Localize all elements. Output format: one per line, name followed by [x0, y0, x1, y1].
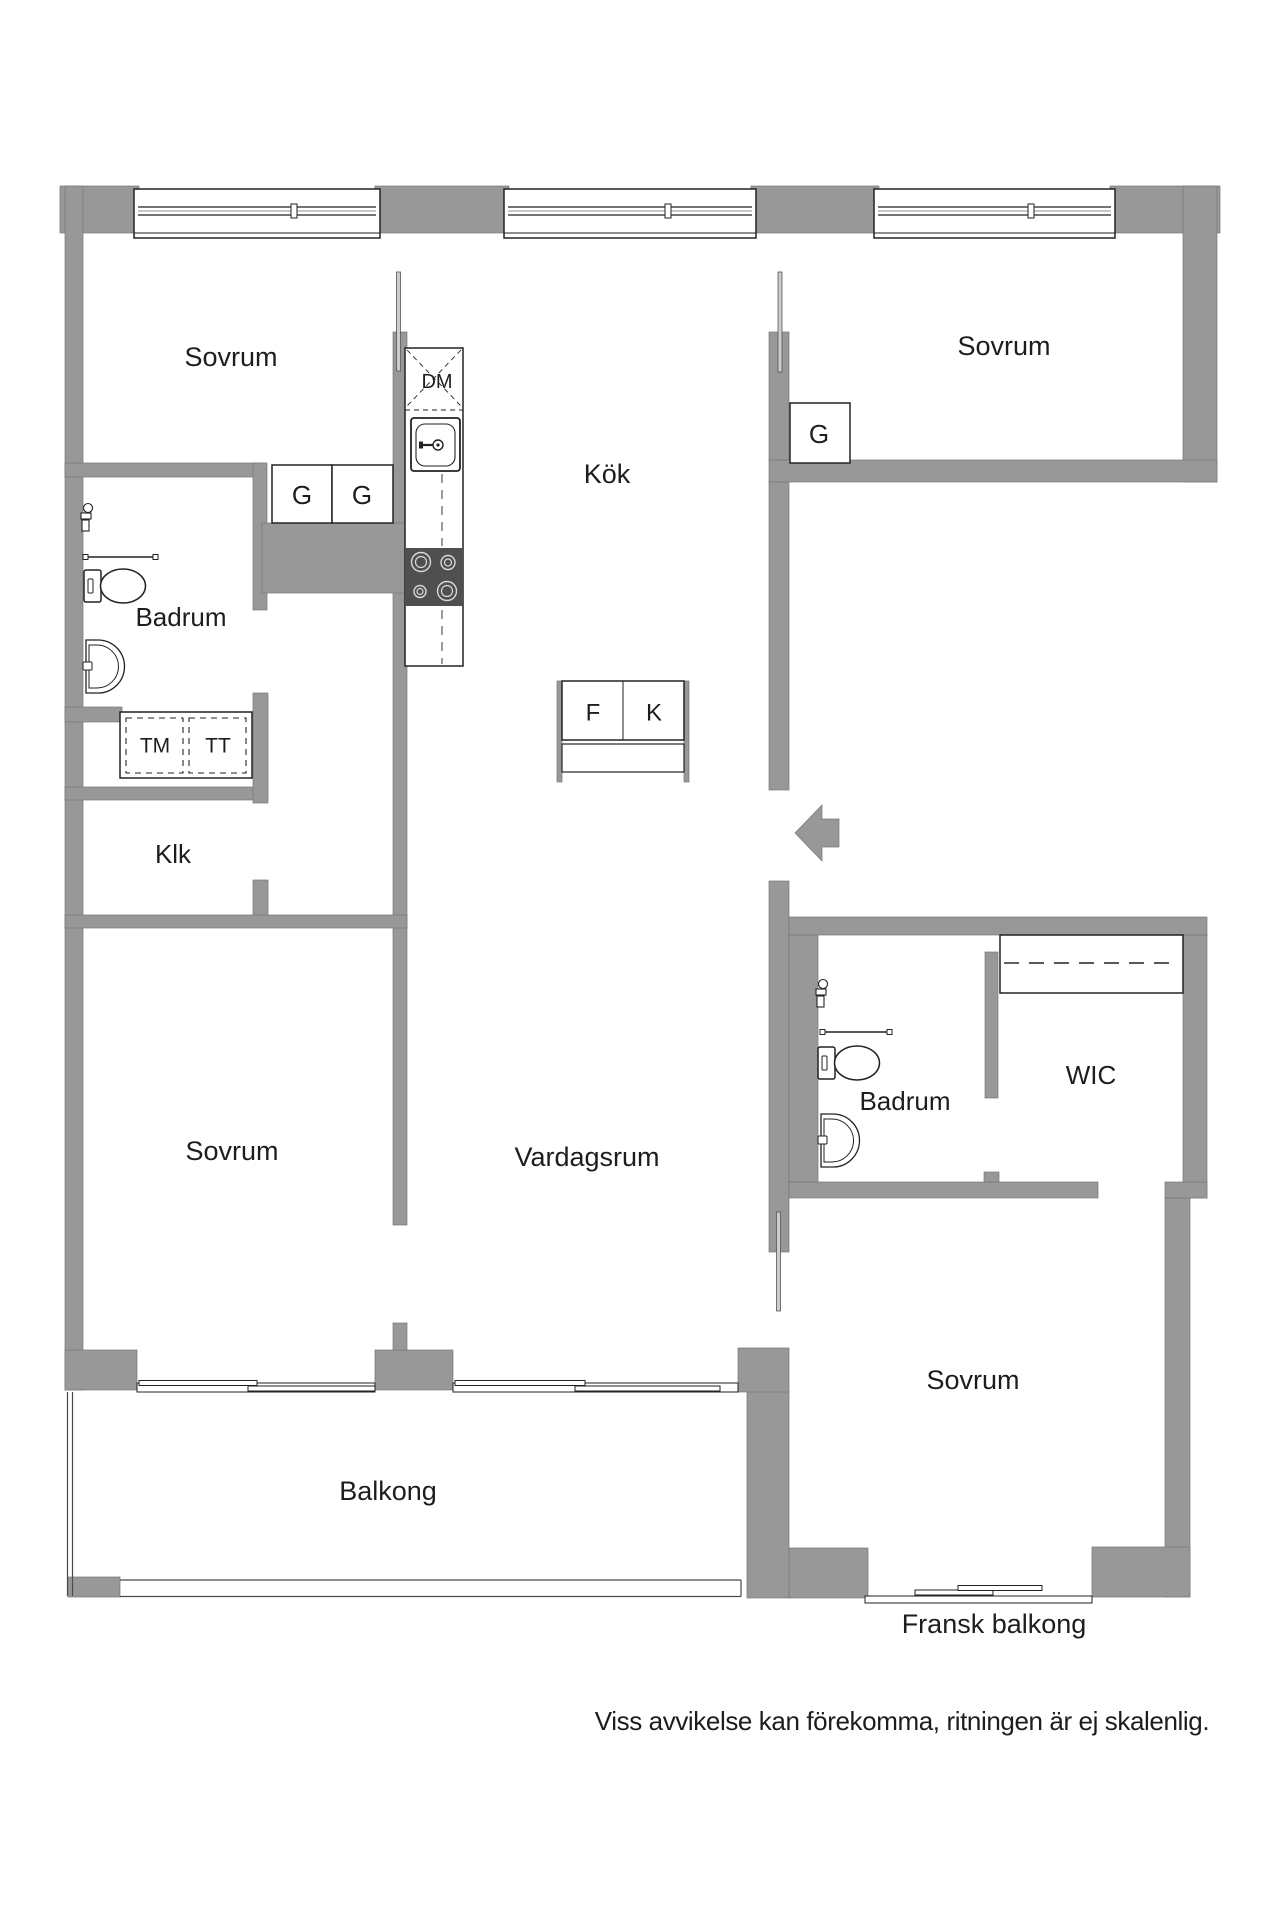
wall-segment — [789, 917, 1207, 935]
room-label-bathroom-left: Badrum — [135, 602, 226, 632]
room-label-bedroom-top-left: Sovrum — [184, 342, 277, 372]
fixture-label-dishwasher: DM — [421, 371, 452, 393]
disclaimer-text: Viss avvikelse kan förekomma, ritningen … — [595, 1706, 1209, 1736]
fridge-freezer-unit — [557, 681, 689, 782]
wall-segment — [984, 1172, 999, 1182]
towel-rail-icon — [83, 555, 158, 560]
room-label-french-balcony: Fransk balkong — [902, 1609, 1087, 1639]
fixture-label-wardrobe: G — [809, 419, 829, 449]
window — [874, 189, 1115, 238]
room-label-living-room: Vardagsrum — [514, 1142, 659, 1172]
wall-segment — [375, 186, 509, 233]
room-label-kitchen: Kök — [584, 459, 631, 489]
wall-segment — [65, 707, 122, 722]
door-leaf — [777, 1212, 781, 1311]
window — [504, 189, 756, 238]
fixture-label-washing-machine: TM — [140, 735, 170, 758]
wall-segment — [751, 186, 879, 233]
room-label-bedroom-bottom-right: Sovrum — [926, 1365, 1019, 1395]
windows — [134, 189, 1115, 238]
wall-segment — [789, 935, 818, 1182]
wic-wardrobe — [1000, 935, 1183, 993]
wall-segment — [65, 463, 263, 477]
interior-walls — [65, 332, 1217, 1252]
room-label-bedroom-bottom-left: Sovrum — [185, 1136, 278, 1166]
french-balcony-door — [865, 1586, 1092, 1604]
floor-plan: Sovrum Sovrum Kök Badrum Klk Sovrum Vard… — [0, 0, 1280, 1920]
fixture-label-wardrobe: G — [292, 480, 312, 510]
wall-segment — [253, 880, 268, 915]
wall-segment — [393, 1323, 407, 1350]
wall-segment — [375, 1350, 453, 1390]
bathroom-left-fixtures — [81, 504, 158, 694]
stove-icon — [405, 548, 463, 606]
wall-segment — [262, 523, 407, 593]
wall-segment — [769, 482, 789, 790]
wall-segment — [65, 915, 407, 928]
fixture-label-fridge: K — [646, 700, 662, 727]
wall-segment — [65, 1350, 137, 1390]
balcony-structure — [68, 1381, 1093, 1604]
entry-arrow-icon — [795, 805, 839, 861]
door-leaf — [397, 272, 401, 371]
fixture-label-tumble-dryer: TT — [205, 735, 231, 758]
wall-segment — [769, 881, 789, 1252]
wall-segment — [789, 1182, 1098, 1198]
towel-rail-icon — [820, 1030, 892, 1035]
bathroom-right-fixtures — [816, 980, 892, 1168]
wall-segment — [789, 1548, 868, 1598]
wall-segment — [68, 1577, 120, 1597]
room-label-balcony: Balkong — [339, 1476, 437, 1506]
wall-segment — [65, 787, 253, 800]
sink-icon — [818, 1114, 860, 1167]
wall-segment — [747, 1390, 789, 1598]
room-label-bathroom-right: Badrum — [859, 1086, 950, 1116]
wall-segment — [985, 952, 998, 1098]
floor-plan-page: Sovrum Sovrum Kök Badrum Klk Sovrum Vard… — [0, 0, 1280, 1920]
wall-segment — [1165, 1182, 1207, 1198]
wall-segment — [1183, 186, 1217, 482]
wall-segment — [253, 693, 268, 803]
wall-segment — [738, 1348, 789, 1392]
room-label-wic: WIC — [1066, 1060, 1117, 1090]
door-leaf — [778, 272, 782, 372]
kitchen-sink-icon — [411, 418, 460, 471]
wall-segment — [1183, 935, 1207, 1198]
window — [134, 189, 380, 238]
wall-segment — [1092, 1547, 1190, 1597]
room-label-bedroom-top-right: Sovrum — [957, 331, 1050, 361]
wall-segment — [1165, 1198, 1190, 1597]
balcony-door — [137, 1381, 375, 1393]
balcony-door — [453, 1381, 738, 1393]
fixture-label-freezer: F — [586, 700, 601, 727]
kitchen-counter — [405, 348, 463, 666]
toilet-icon — [84, 569, 146, 603]
fixture-label-wardrobe: G — [352, 480, 372, 510]
room-label-closet: Klk — [155, 839, 192, 869]
sink-icon — [83, 640, 125, 693]
toilet-icon — [818, 1046, 880, 1080]
